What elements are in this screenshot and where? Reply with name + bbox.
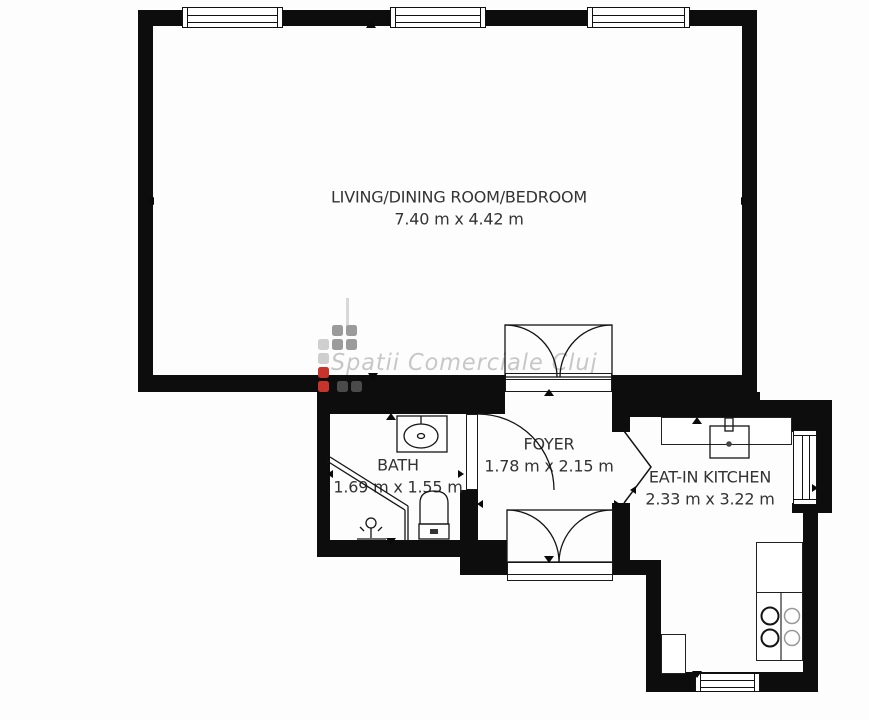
foyer-bottom-door-threshold — [507, 562, 613, 581]
window-icon — [793, 430, 817, 505]
room-label-bath: BATH 1.69 m x 1.55 m — [333, 456, 462, 497]
bath-door-leaf — [466, 414, 478, 490]
wall-foyer-bottom-left — [460, 540, 507, 575]
room-name: LIVING/DINING ROOM/BEDROOM — [331, 188, 587, 207]
toilet-tank — [419, 524, 449, 539]
wall-kitchen-top — [612, 392, 760, 417]
floor-plan: LIVING/DINING ROOM/BEDROOM 7.40 m x 4.42… — [0, 0, 869, 720]
double-door-swing-icon — [507, 510, 613, 562]
window-icon — [182, 7, 283, 28]
watermark-logo-square — [318, 381, 329, 392]
watermark-logo-square — [318, 353, 329, 364]
window-glass — [188, 15, 277, 23]
window-icon — [390, 7, 486, 28]
foyer-top-door-threshold — [505, 373, 612, 392]
window-glass — [701, 680, 754, 688]
wall-living-left — [138, 10, 153, 392]
room-label-living: LIVING/DINING ROOM/BEDROOM 7.40 m x 4.42… — [331, 188, 587, 229]
dimension-arrow-icon — [386, 413, 396, 420]
watermark-logo-square — [318, 367, 329, 378]
room-label-kitchen: EAT-IN KITCHEN 2.33 m x 3.22 m — [645, 468, 774, 509]
dimension-arrow-icon — [630, 486, 636, 494]
threshold-line — [506, 379, 611, 380]
watermark-logo-square — [351, 381, 362, 392]
wall-kitchen-right-lower — [803, 513, 818, 677]
door-swing-arc — [507, 510, 559, 562]
wall-living-right — [742, 10, 757, 400]
faucet-icon — [366, 518, 376, 528]
watermark-logo-square — [332, 339, 343, 350]
window-icon — [695, 673, 760, 692]
wall-living-bottom-right — [612, 375, 757, 392]
wall-bath-bottom — [317, 540, 478, 557]
watermark-logo-square — [332, 325, 343, 336]
bath-sink-basin — [404, 424, 438, 448]
kitchen-counter — [661, 417, 792, 445]
room-label-foyer: FOYER 1.78 m x 2.15 m — [484, 435, 613, 476]
toilet-button — [430, 529, 438, 534]
wall-bath-left — [317, 392, 330, 557]
room-dimensions: 1.69 m x 1.55 m — [333, 478, 462, 497]
wall-bath-top — [317, 392, 505, 414]
room-name: EAT-IN KITCHEN — [645, 468, 774, 487]
room-dimensions: 7.40 m x 4.42 m — [331, 210, 587, 229]
kitchen-cabinet — [661, 634, 686, 674]
watermark-logo-square — [318, 339, 329, 350]
window-icon — [587, 7, 690, 28]
bath-sink-icon — [397, 416, 447, 452]
bath-sink-drain — [418, 434, 425, 439]
watermark-logo-square — [337, 381, 348, 392]
threshold-line — [508, 574, 612, 575]
room-dimensions: 2.33 m x 3.22 m — [645, 490, 774, 509]
watermark-logo-square — [346, 339, 357, 350]
watermark-logo-bar — [346, 298, 349, 327]
door-swing-arc — [559, 510, 613, 562]
fridge-icon — [756, 542, 803, 593]
faucet-icon — [357, 527, 386, 539]
room-name: FOYER — [484, 435, 613, 454]
wall-kitchen-left-lower — [646, 560, 661, 692]
room-dimensions: 1.78 m x 2.15 m — [484, 457, 613, 476]
window-glass — [396, 15, 480, 23]
watermark-logo-square — [346, 325, 357, 336]
room-name: BATH — [333, 456, 462, 475]
window-glass — [593, 15, 684, 23]
window-glass — [802, 436, 810, 499]
stove-icon — [756, 592, 803, 661]
